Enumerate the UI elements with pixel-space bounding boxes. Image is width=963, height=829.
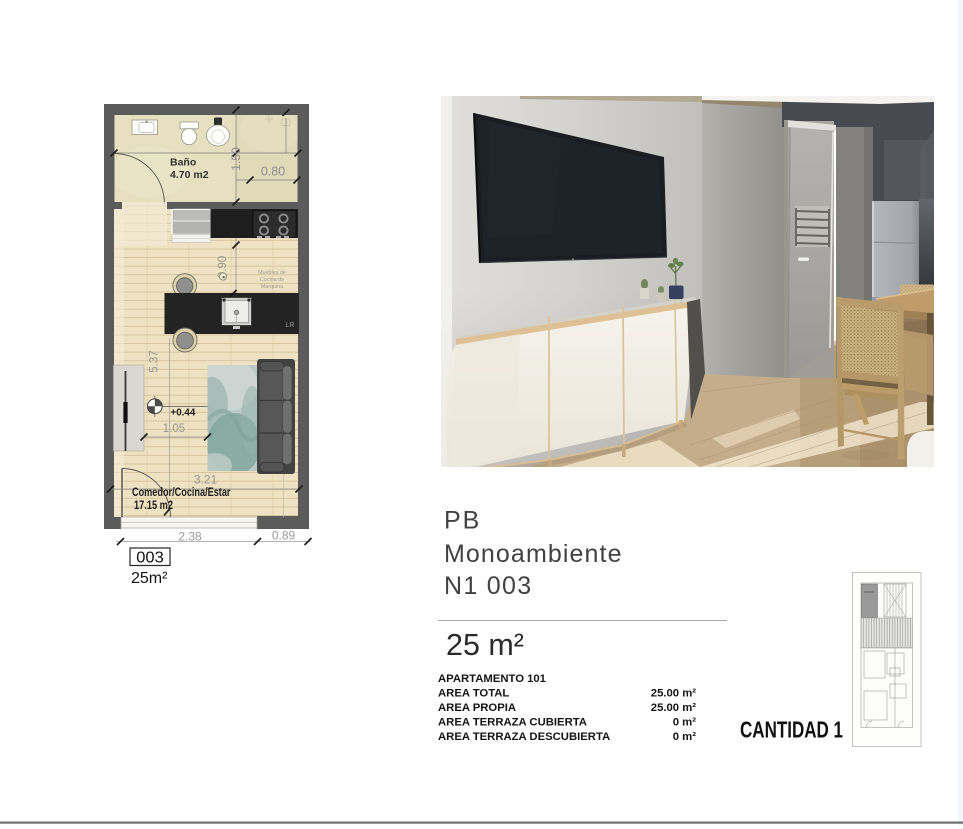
svg-text:Comedor/Cocina/Estar: Comedor/Cocina/Estar [132,487,231,499]
svg-text:Baño: Baño [170,157,196,169]
svg-text:APARTAMENTO 101: APARTAMENTO 101 [438,673,546,685]
svg-text:4.70 m2: 4.70 m2 [170,169,209,181]
svg-text:AREA TERRAZA DESCUBIERTA: AREA TERRAZA DESCUBIERTA [438,731,610,743]
svg-text:25.00 m²: 25.00 m² [651,688,696,700]
svg-text:AREA TERRAZA CUBIERTA: AREA TERRAZA CUBIERTA [438,717,587,729]
svg-text:0 m²: 0 m² [673,731,696,743]
svg-text:5.37: 5.37 [149,350,161,372]
svg-text:25m²: 25m² [131,570,168,587]
svg-text:N1 003: N1 003 [444,572,532,600]
svg-text:1.50: 1.50 [229,147,243,171]
svg-text:Monoambiente: Monoambiente [444,540,623,568]
svg-text:CANTIDAD 1: CANTIDAD 1 [740,717,843,743]
svg-text:Cocina de: Cocina de [260,277,284,283]
svg-text:25.00 m²: 25.00 m² [651,702,696,714]
svg-text:AREA PROPIA: AREA PROPIA [438,702,516,714]
svg-text:1.05: 1.05 [163,423,185,435]
svg-text:LR: LR [286,322,295,329]
svg-text:25 m²: 25 m² [446,628,524,662]
svg-text:17.15 m2: 17.15 m2 [134,500,173,512]
svg-text:Muebles de: Muebles de [258,270,286,276]
svg-text:0.89: 0.89 [272,529,296,543]
svg-text:Marquina: Marquina [261,284,283,290]
svg-text:0.80: 0.80 [261,165,285,179]
svg-text:0 m²: 0 m² [673,717,696,729]
svg-text:PB: PB [444,507,481,535]
svg-text:3.21: 3.21 [194,473,218,487]
svg-text:AREA TOTAL: AREA TOTAL [438,688,509,700]
svg-text:+0.44: +0.44 [171,408,196,419]
svg-text:2.38: 2.38 [178,530,202,544]
svg-text:003: 003 [136,550,164,567]
